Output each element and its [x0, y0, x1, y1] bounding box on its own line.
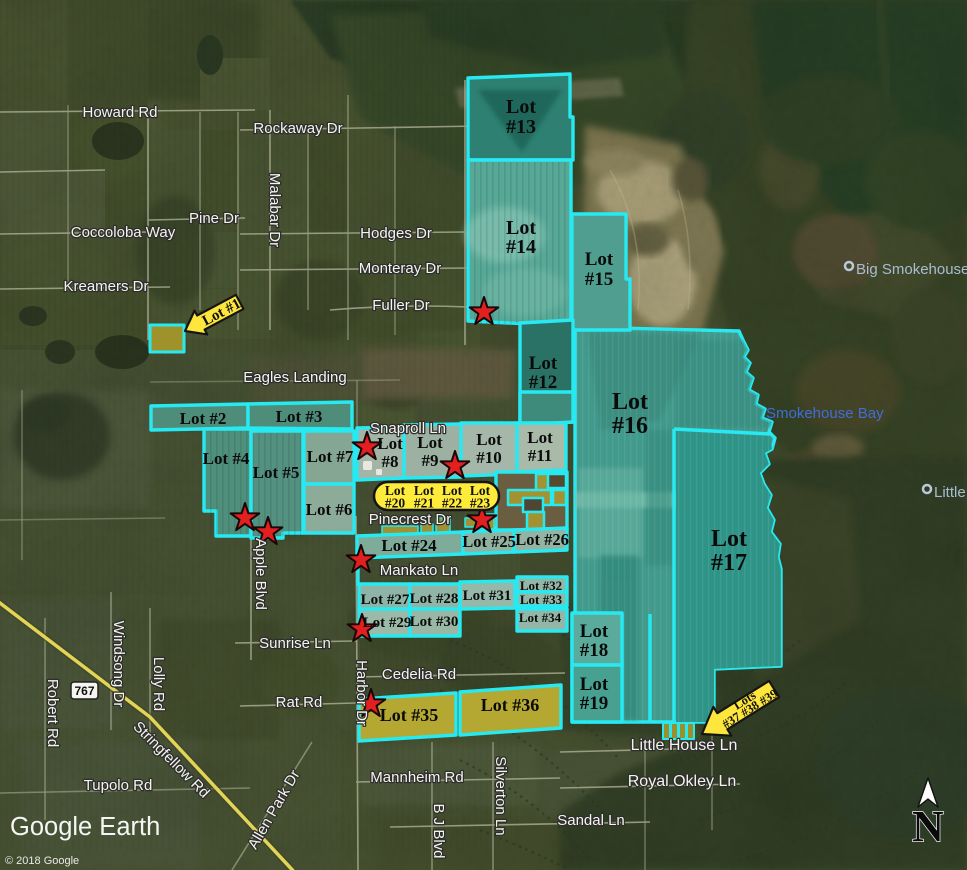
svg-text:Pinecrest Dr: Pinecrest Dr	[369, 511, 452, 528]
svg-text:Tupolo Rd: Tupolo Rd	[84, 777, 153, 794]
svg-text:#20: #20	[385, 496, 406, 511]
svg-text:Little: Little	[934, 484, 966, 501]
svg-text:#8: #8	[382, 452, 399, 471]
svg-text:Silverton Ln: Silverton Ln	[492, 756, 509, 835]
svg-text:Lot #4: Lot #4	[203, 449, 250, 468]
svg-text:Lot #30: Lot #30	[410, 614, 459, 630]
svg-text:Hodges Dr: Hodges Dr	[360, 225, 432, 242]
svg-text:Lot #32: Lot #32	[520, 578, 562, 593]
svg-text:Lot #6: Lot #6	[306, 500, 353, 519]
svg-text:Lot #36: Lot #36	[481, 695, 540, 715]
svg-text:Lot #26: Lot #26	[515, 530, 569, 549]
svg-text:Lot: Lot	[585, 249, 614, 270]
svg-text:Robert Rd: Robert Rd	[44, 679, 61, 747]
svg-text:Coccoloba Way: Coccoloba Way	[71, 224, 176, 241]
svg-text:Lot: Lot	[580, 674, 609, 695]
svg-text:#14: #14	[506, 236, 536, 258]
svg-text:Harbor Dr: Harbor Dr	[353, 660, 370, 726]
svg-text:Rat Rd: Rat Rd	[276, 694, 323, 711]
svg-text:Google Earth: Google Earth	[10, 813, 160, 841]
svg-text:Lot #29: Lot #29	[363, 615, 412, 631]
svg-text:#21: #21	[414, 496, 435, 511]
svg-text:Eagles Landing: Eagles Landing	[243, 369, 346, 386]
svg-text:Lot #31: Lot #31	[463, 588, 512, 604]
svg-text:Snaproll Ln: Snaproll Ln	[370, 420, 446, 437]
svg-text:Lot: Lot	[529, 353, 558, 374]
svg-text:#9: #9	[422, 451, 439, 470]
svg-text:Lot: Lot	[580, 621, 609, 642]
svg-text:Malabar Dr: Malabar Dr	[266, 173, 283, 247]
svg-text:#13: #13	[506, 116, 536, 138]
svg-text:Lot #27: Lot #27	[361, 592, 410, 608]
svg-text:Lot #5: Lot #5	[253, 463, 300, 482]
svg-text:© 2018 Google: © 2018 Google	[5, 855, 79, 867]
svg-text:Lot #7: Lot #7	[307, 447, 354, 466]
svg-text:Mannheim Rd: Mannheim Rd	[370, 769, 463, 786]
svg-text:Apple Blvd: Apple Blvd	[252, 538, 269, 610]
svg-text:Lolly Rd: Lolly Rd	[150, 657, 167, 711]
svg-text:N: N	[912, 802, 944, 851]
svg-text:Fuller Dr: Fuller Dr	[372, 297, 430, 314]
svg-text:Lot #34: Lot #34	[519, 610, 562, 625]
svg-text:Lot #28: Lot #28	[410, 591, 459, 607]
svg-text:Monteray Dr: Monteray Dr	[359, 260, 442, 277]
svg-text:Lot: Lot	[476, 430, 502, 449]
svg-text:#19: #19	[580, 693, 609, 714]
svg-text:B J Blvd: B J Blvd	[430, 803, 447, 858]
svg-text:Big Smokehouse: Big Smokehouse	[856, 261, 967, 278]
svg-text:#12: #12	[529, 372, 558, 393]
svg-text:Mankato Ln: Mankato Ln	[380, 562, 458, 579]
svg-text:Lot #25: Lot #25	[462, 532, 516, 551]
svg-text:Lot: Lot	[711, 526, 747, 552]
svg-text:Smokehouse Bay: Smokehouse Bay	[766, 405, 884, 422]
svg-text:Lot #24: Lot #24	[381, 536, 437, 555]
svg-text:Lot: Lot	[612, 389, 648, 415]
svg-text:Windsong Dr: Windsong Dr	[110, 621, 127, 708]
svg-text:Howard Rd: Howard Rd	[82, 104, 157, 121]
svg-text:Lot: Lot	[506, 96, 536, 118]
svg-text:#22: #22	[442, 496, 463, 511]
svg-text:Cedelia Rd: Cedelia Rd	[382, 666, 456, 683]
svg-text:Lot #2: Lot #2	[180, 409, 227, 428]
svg-text:Lot #33: Lot #33	[520, 592, 563, 607]
svg-text:Kreamers Dr: Kreamers Dr	[63, 278, 148, 295]
svg-text:Sandal Ln: Sandal Ln	[557, 812, 625, 829]
svg-text:#10: #10	[476, 448, 502, 467]
svg-text:#23: #23	[470, 496, 491, 511]
svg-text:Little House Ln: Little House Ln	[631, 737, 738, 754]
svg-text:767: 767	[74, 684, 94, 698]
svg-text:#16: #16	[612, 413, 648, 439]
svg-text:Royal Okley Ln: Royal Okley Ln	[628, 773, 737, 790]
svg-text:Pine Dr: Pine Dr	[189, 210, 239, 227]
svg-text:#17: #17	[711, 550, 747, 576]
svg-text:#18: #18	[580, 640, 609, 661]
svg-text:Lot #35: Lot #35	[380, 705, 439, 725]
svg-text:Lot #3: Lot #3	[276, 407, 323, 426]
svg-text:Rockaway Dr: Rockaway Dr	[253, 120, 342, 137]
svg-text:#15: #15	[585, 269, 614, 290]
svg-text:Lot: Lot	[527, 428, 553, 447]
svg-text:Sunrise Ln: Sunrise Ln	[259, 635, 331, 652]
svg-text:#11: #11	[528, 446, 553, 465]
